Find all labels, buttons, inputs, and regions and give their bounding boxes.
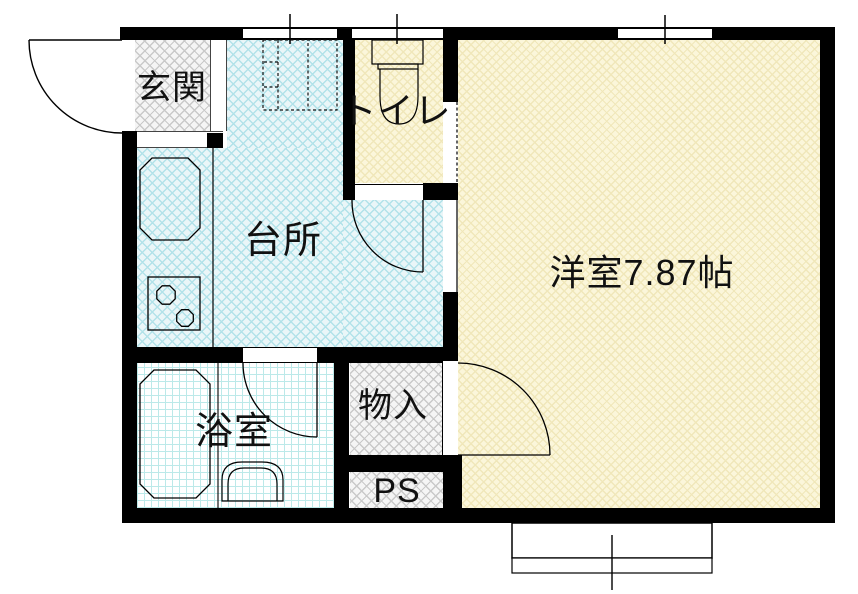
- label-toilet: トイレ: [340, 93, 451, 129]
- room-kitchen-floor-right: [343, 200, 443, 347]
- label-western-room: 洋室7.87帖: [549, 255, 734, 291]
- room-kitchen-floor-top: [227, 40, 343, 148]
- wall-toilet-bottom: [423, 183, 458, 200]
- genkan-step-strip: [210, 40, 227, 131]
- wall-genkan-stub: [207, 133, 223, 148]
- label-genkan: 玄関: [137, 71, 207, 105]
- label-bathroom: 浴室: [195, 413, 273, 451]
- entrance-door-icon: [29, 40, 122, 133]
- wall-room-left-mid: [443, 292, 458, 361]
- floor-plan: 玄関 台所 トイレ 洋室7.87帖 浴室 物入 PS: [0, 0, 858, 594]
- label-pipe-space: PS: [373, 474, 420, 508]
- wall-right: [820, 27, 835, 523]
- window-icon-toilet: [352, 27, 443, 40]
- label-kitchen: 台所: [244, 222, 322, 260]
- wall-bottom: [122, 508, 835, 523]
- window-icon-kitchen: [243, 27, 337, 40]
- wall-ps-right: [448, 455, 462, 510]
- wall-left-lower: [122, 131, 137, 523]
- door-gap-bathroom: [243, 348, 317, 362]
- wall-left-upper: [122, 27, 137, 40]
- window-icon-western-room: [618, 27, 712, 40]
- door-gap-toilet: [355, 184, 423, 199]
- wall-bath-right: [334, 347, 349, 508]
- bay-window-icon: [512, 523, 712, 590]
- wall-top: [120, 27, 835, 40]
- label-storage: 物入: [358, 389, 428, 423]
- wall-storage-ps-divider: [334, 455, 462, 472]
